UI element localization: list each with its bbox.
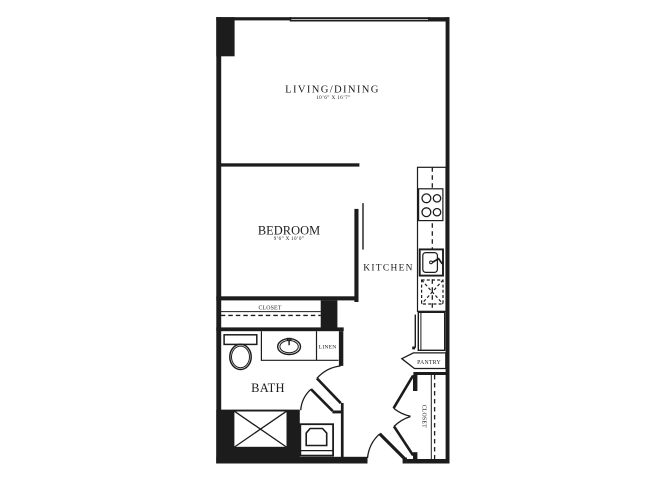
svg-text:10’6” X 16’7”: 10’6” X 16’7” [316, 95, 351, 101]
svg-text:LINEN: LINEN [319, 344, 337, 350]
svg-text:PANTRY: PANTRY [417, 360, 441, 366]
svg-text:CLOSET: CLOSET [258, 306, 281, 312]
svg-text:KITCHEN: KITCHEN [363, 263, 414, 273]
svg-text:9’6” X 10’0”: 9’6” X 10’0” [274, 236, 305, 242]
svg-text:CLOSET: CLOSET [421, 405, 427, 428]
svg-text:BATH: BATH [251, 381, 285, 395]
